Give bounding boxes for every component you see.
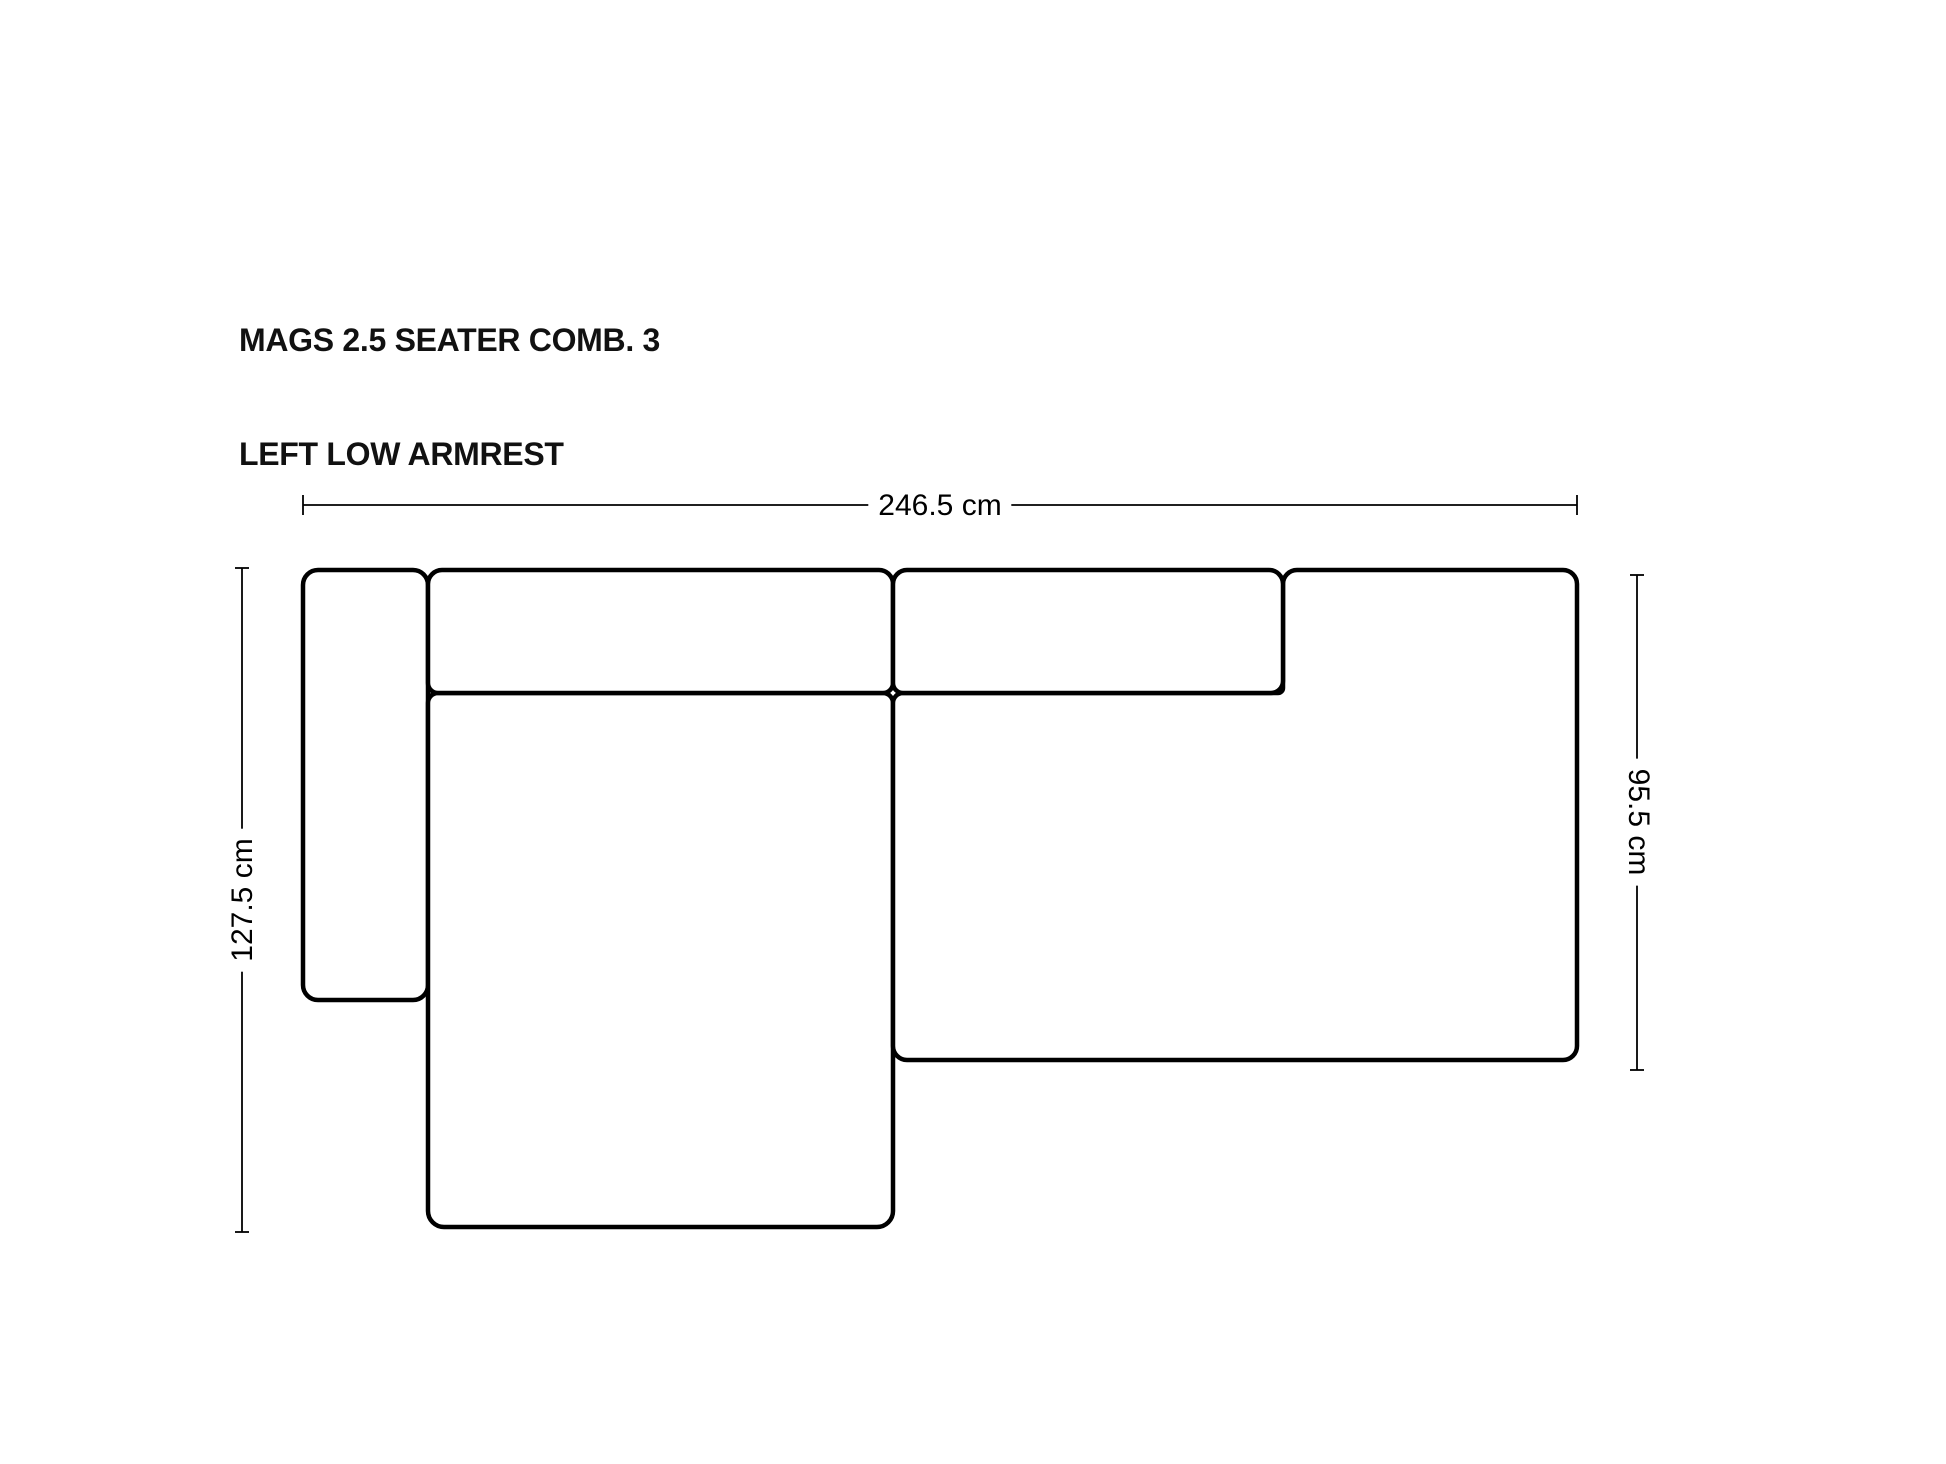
armrest-outline — [303, 570, 428, 1000]
left-backrest-outline — [428, 570, 893, 693]
sofa-outline — [303, 570, 1577, 1227]
sofa-dimension-diagram — [0, 0, 1946, 1464]
chaise-seat-outline — [428, 693, 893, 1227]
page: MAGS 2.5 SEATER COMB. 3 LEFT LOW ARMREST — [0, 0, 1946, 1464]
right-backrest-outline — [893, 570, 1283, 693]
left-depth-dimension-label: 127.5 cm — [225, 828, 261, 971]
right-depth-dimension-label: 95.5 cm — [1620, 759, 1656, 886]
width-dimension-label: 246.5 cm — [868, 488, 1011, 524]
